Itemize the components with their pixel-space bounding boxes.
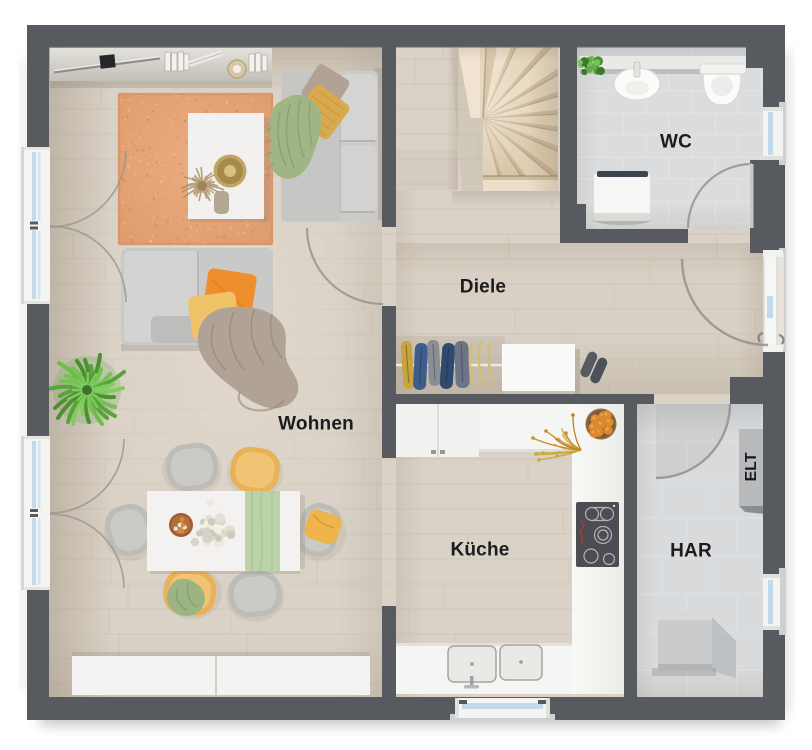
svg-text:Diele: Diele [460,277,506,298]
svg-text:HAR: HAR [670,541,712,562]
svg-text:Küche: Küche [450,540,509,561]
svg-text:WC: WC [660,132,692,153]
svg-text:Wohnen: Wohnen [278,414,354,435]
svg-text:ELT: ELT [743,452,760,481]
